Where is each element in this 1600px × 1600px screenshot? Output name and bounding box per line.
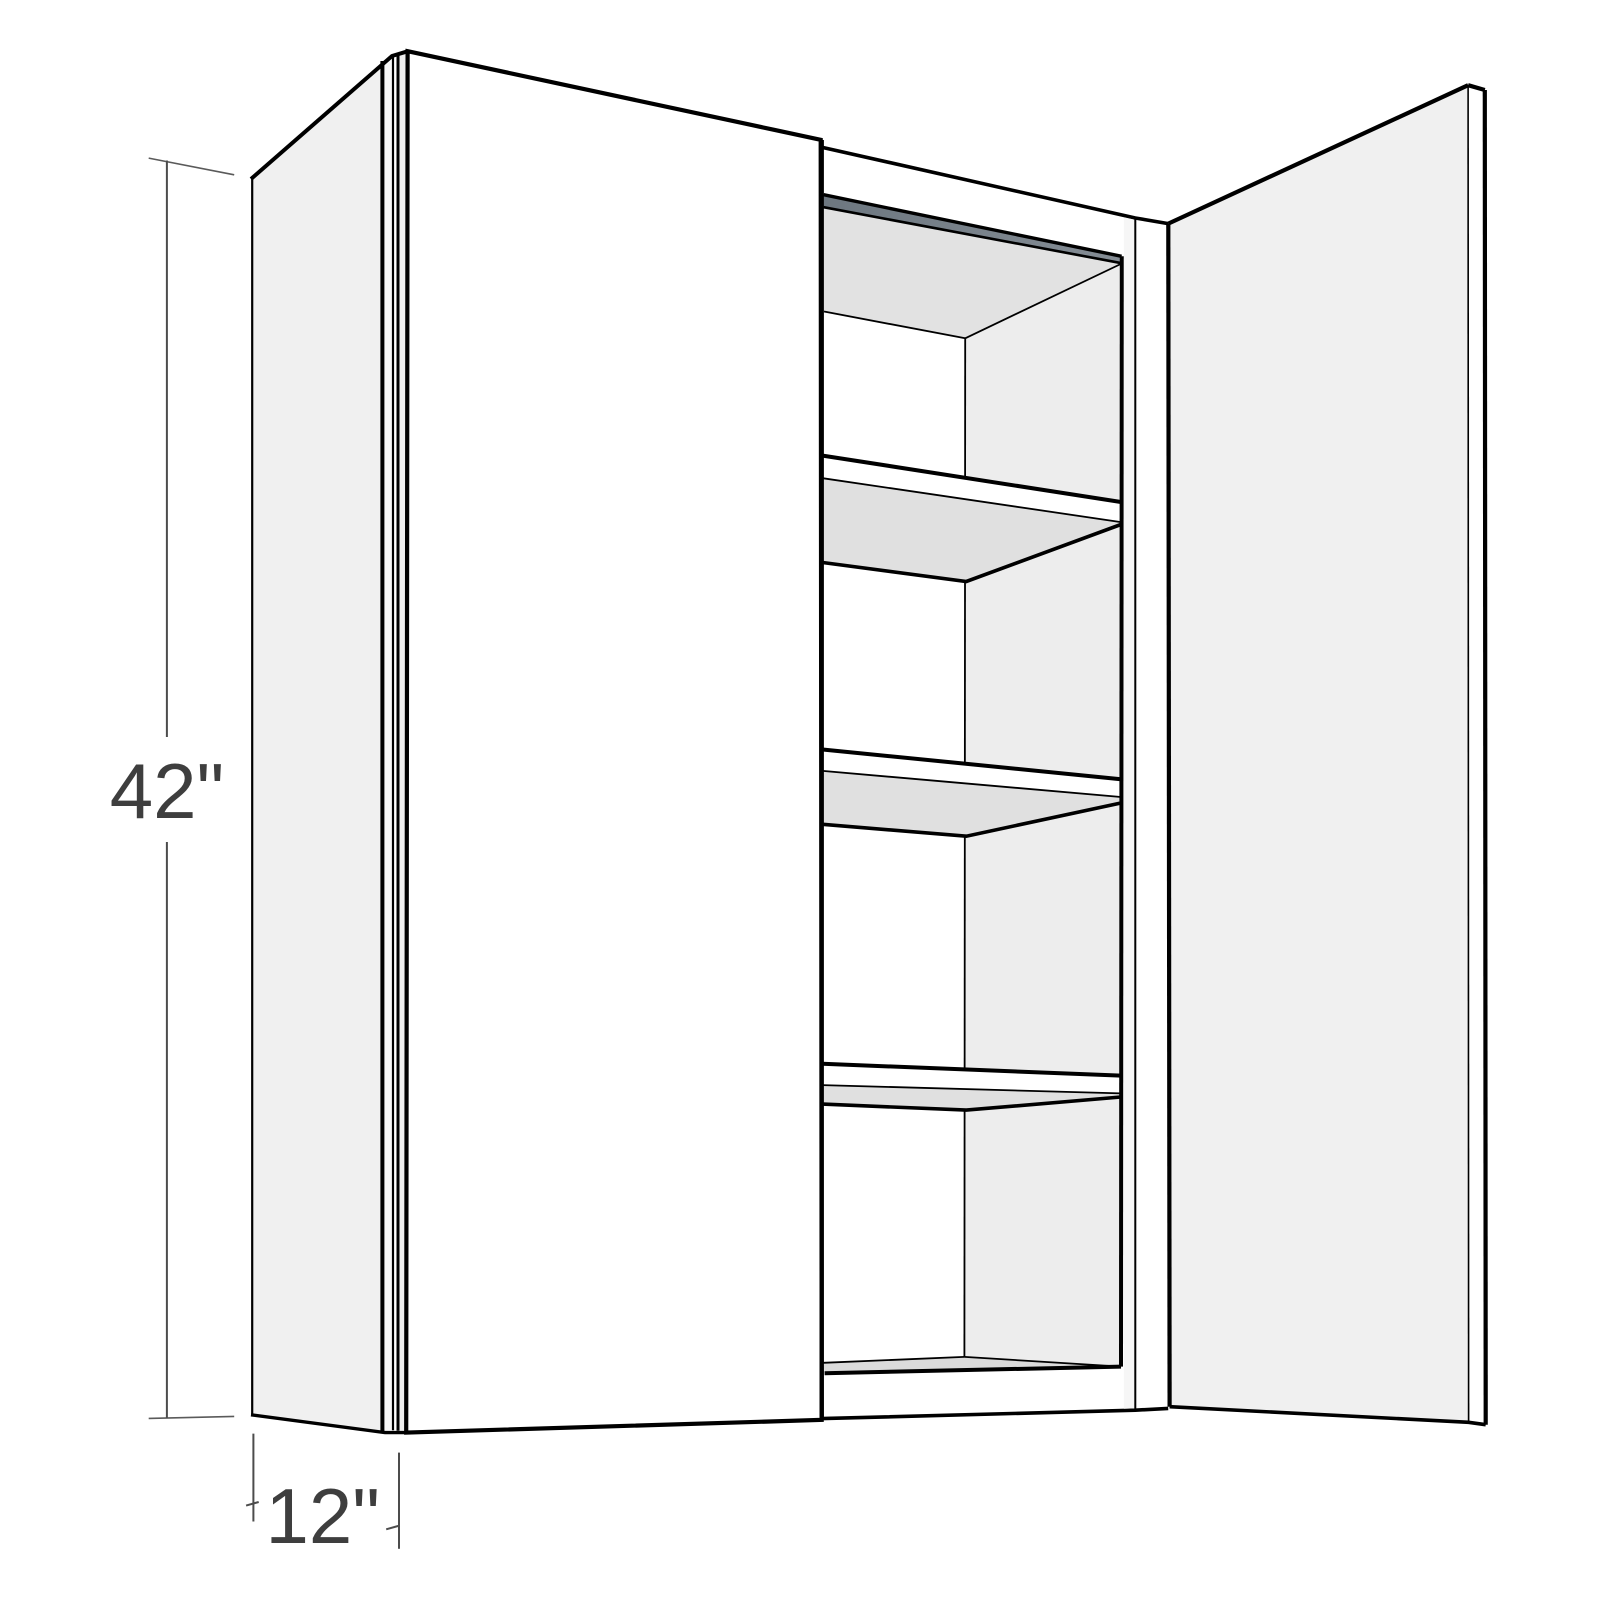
- svg-text:42": 42": [110, 747, 224, 835]
- svg-text:12": 12": [265, 1472, 379, 1560]
